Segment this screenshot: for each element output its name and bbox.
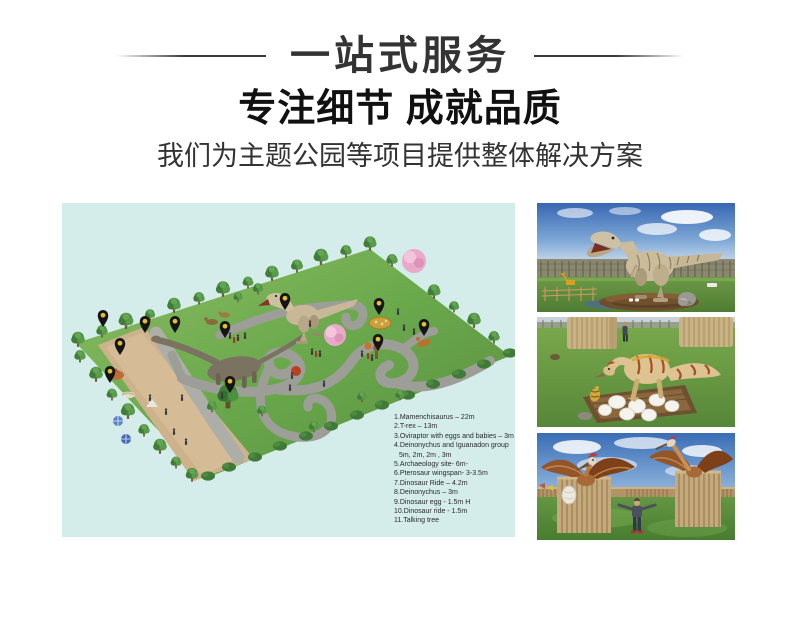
title-right-rule bbox=[534, 55, 684, 57]
photo-trex-graphic bbox=[537, 203, 735, 312]
legend-line: 10.Dinosaur ride - 1.5m bbox=[394, 507, 514, 516]
oviraptor-nest bbox=[369, 317, 391, 329]
distant-car bbox=[707, 283, 717, 287]
legend-line: 6.Pterosaur wingspan- 3-3.5m bbox=[394, 469, 514, 478]
headline: 专注细节 成就品质 bbox=[0, 88, 800, 130]
legend-line: 5.Archaeology site- 6m- bbox=[394, 460, 514, 469]
subtitle: 我们为主题公园等项目提供整体解决方案 bbox=[0, 140, 800, 172]
legend-line: 3.Oviraptor with eggs and babies – 3m bbox=[394, 432, 514, 441]
promo-page: 一站式服务 专注细节 成就品质 我们为主题公园等项目提供整体解决方案 bbox=[0, 0, 800, 626]
rock-left bbox=[550, 354, 560, 360]
rock-by-nest bbox=[578, 412, 592, 420]
attraction-legend: 1.Mamenchisaurus – 22m 2.T-rex – 13m 3.O… bbox=[394, 413, 514, 526]
legend-line: 4.Deinonychus and Iguanadon group bbox=[394, 441, 514, 450]
photo-oviraptor-graphic bbox=[537, 317, 735, 427]
orange-bush bbox=[364, 342, 371, 349]
legend-line: 7.Dinosaur Ride – 4.2m bbox=[394, 479, 514, 488]
legend-line: 11.Talking tree bbox=[394, 516, 514, 525]
legend-line: 5m, 2m, 2m , 3m bbox=[394, 451, 514, 460]
section-title: 一站式服务 bbox=[290, 36, 510, 76]
log-drum-left bbox=[567, 317, 617, 349]
legend-line: 2.T-rex – 13m bbox=[394, 422, 514, 431]
legend-line: 1.Mamenchisaurus – 22m bbox=[394, 413, 514, 422]
legend-line: 9.Dinosaur egg - 1.5m H bbox=[394, 498, 514, 507]
title-left-rule bbox=[116, 55, 266, 57]
log-drum-right bbox=[679, 317, 733, 347]
photo-pterosaurs bbox=[537, 433, 735, 540]
section-title-row: 一站式服务 bbox=[0, 36, 800, 76]
legend-line: 8.Deinonychus – 3m bbox=[394, 488, 514, 497]
park-plan-image: 1.Mamenchisaurus – 22m 2.T-rex – 13m 3.O… bbox=[62, 203, 515, 537]
log-tower-right bbox=[675, 471, 721, 527]
white-ornament bbox=[562, 486, 576, 504]
photo-trex bbox=[537, 203, 735, 312]
photo-oviraptor-eggs bbox=[537, 317, 735, 427]
photo-pterosaurs-graphic bbox=[537, 433, 735, 540]
